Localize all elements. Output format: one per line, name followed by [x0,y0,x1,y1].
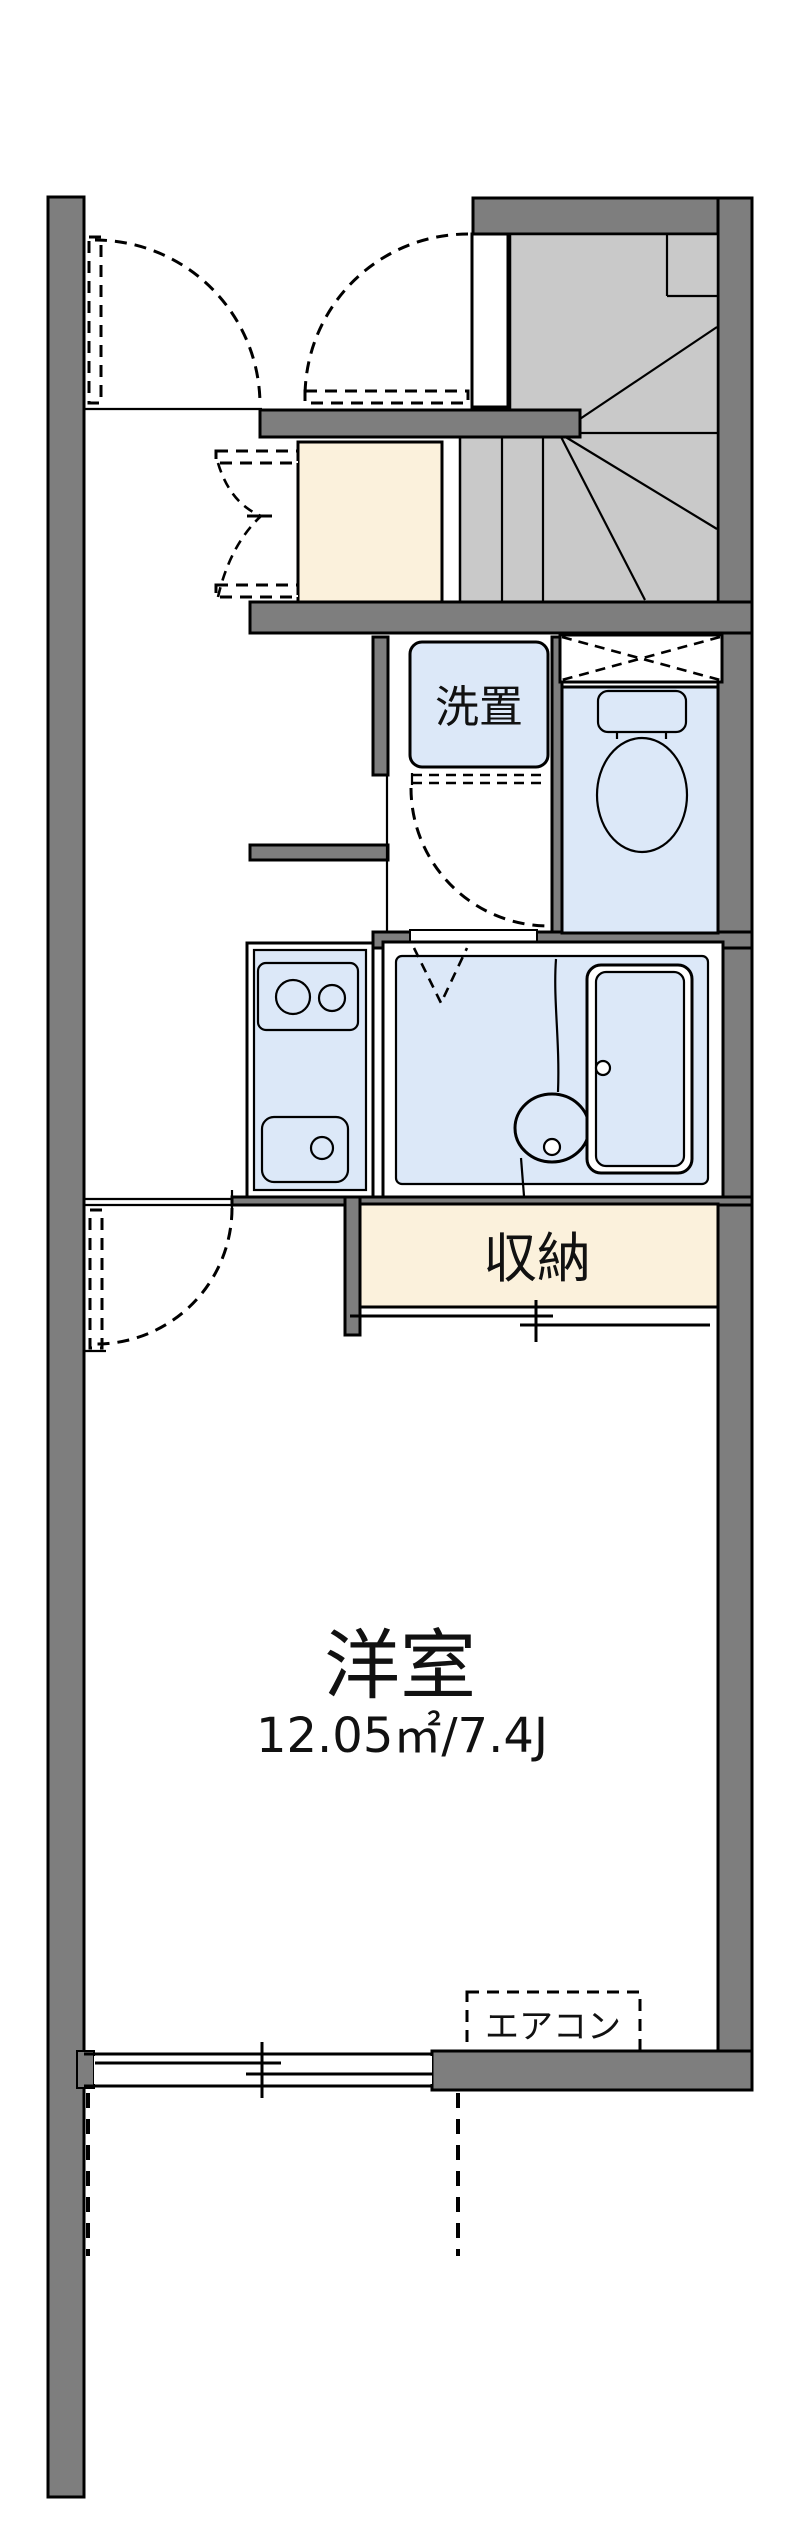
washer-place-label: 洗置 [435,682,523,733]
bottom-wall-right [432,2051,752,2090]
bath-washbowl-drain [544,1139,560,1155]
stair-landing-strip [472,234,508,407]
washroom-door-swing-arc [411,788,549,926]
stove-burner-right [319,985,345,1011]
entrance-door-right-swing-arc [305,234,468,397]
entry-inner-wall [260,410,580,437]
storage-left-wall [345,1197,360,1335]
left-outer-wall [48,197,84,2497]
room-door-leaf [90,1210,102,1348]
main-room-label: 洋室 [324,1621,476,1710]
floor-plan-drawing: 洗置 収納 洋室 12.05㎡/7.4J エアコン [0,0,800,2539]
air-conditioner-label: エアコン [485,2007,621,2047]
washer-room-left-wall [373,637,388,775]
stove-burner-left [276,980,310,1014]
room-door-swing-arc [96,1208,232,1344]
storage-label: 収納 [483,1227,591,1290]
top-outer-wall [473,198,752,234]
toilet-bowl [597,738,687,852]
closet-bifold-door-bottom-leaf [216,585,298,597]
hall-stair-wall [250,602,752,633]
entrance-door-right-leaf [305,391,468,403]
kitchen-sink [262,1117,348,1182]
entrance-door-left-leaf [89,237,101,403]
main-room-size-label: 12.05㎡/7.4J [256,1708,548,1764]
toilet-tank [598,691,686,732]
bathtub-handle [596,1061,610,1075]
floor-plan-page: 洗置 収納 洋室 12.05㎡/7.4J エアコン [0,0,800,2539]
sink-drain [311,1137,333,1159]
entrance-door-left-swing-arc [95,240,260,405]
entry-closet [298,442,442,602]
closet-bifold-door-top-leaf [216,451,298,463]
hall-kitchen-stub-wall [250,845,388,860]
window-left-pier [77,2051,94,2088]
closet-bifold-arc-top [218,463,261,516]
